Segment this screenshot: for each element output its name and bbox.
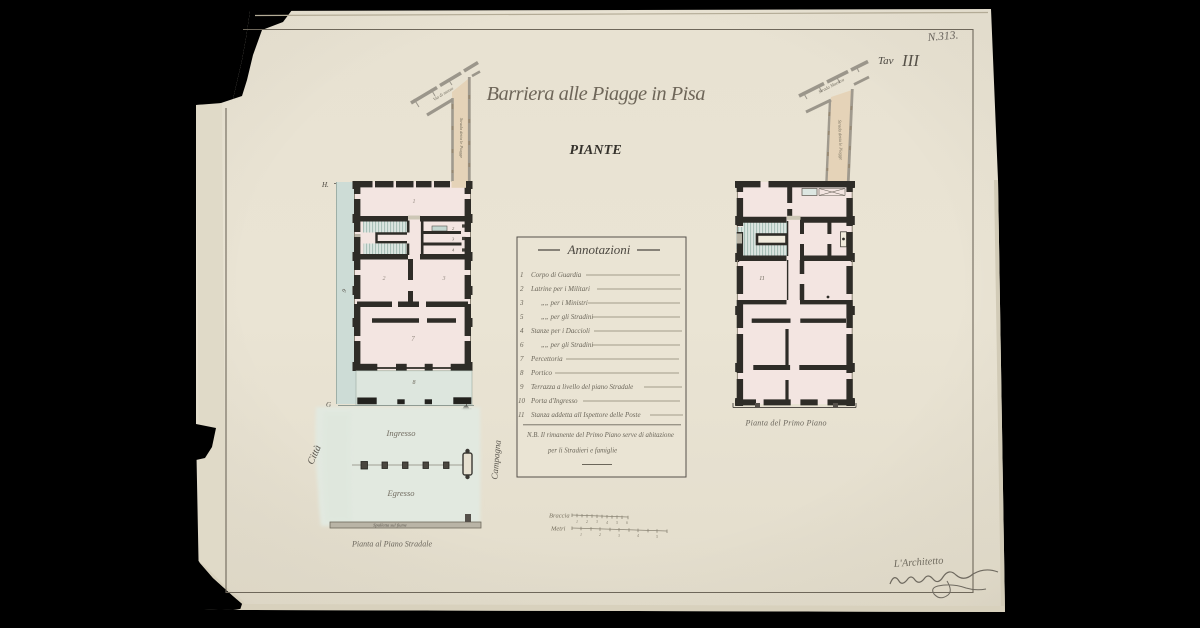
svg-text:11: 11: [759, 276, 765, 282]
svg-text:1: 1: [576, 519, 578, 524]
svg-text:6: 6: [626, 520, 628, 525]
svg-text:8: 8: [520, 369, 524, 377]
svg-text:6: 6: [520, 341, 524, 349]
svg-text:Corpo di Guardia: Corpo di Guardia: [531, 271, 582, 279]
svg-text:10: 10: [518, 397, 526, 405]
svg-text:Spalletta sul fiume: Spalletta sul fiume: [373, 523, 407, 528]
svg-text:Barriera alle Piagge in Pisa: Barriera alle Piagge in Pisa: [487, 83, 706, 105]
svg-text:8: 8: [413, 380, 416, 386]
svg-text:5: 5: [616, 520, 618, 525]
svg-text:7: 7: [520, 355, 524, 363]
svg-text:Tav: Tav: [878, 55, 894, 67]
svg-text:2: 2: [586, 519, 588, 524]
svg-text:Strada detta le Piagge: Strada detta le Piagge: [459, 118, 464, 158]
svg-text:Percettoria: Percettoria: [530, 355, 563, 363]
svg-text:Ingresso: Ingresso: [386, 428, 416, 438]
svg-text:4: 4: [520, 327, 524, 335]
svg-text:1: 1: [520, 271, 524, 279]
svg-text:7: 7: [411, 335, 415, 343]
svg-text:2: 2: [520, 285, 524, 293]
svg-text:9: 9: [520, 383, 524, 391]
svg-text:Annotazioni: Annotazioni: [567, 242, 631, 257]
svg-text:5: 5: [656, 534, 658, 539]
svg-text:3: 3: [519, 299, 524, 307]
svg-text:2: 2: [599, 532, 601, 537]
svg-text:H.: H.: [321, 181, 329, 189]
svg-text:11: 11: [518, 411, 524, 419]
svg-text:N.B. Il rimanente del Primo P: N.B. Il rimanente del Primo Piano serve …: [526, 432, 674, 439]
svg-text:Pianta del Primo Piano: Pianta del Primo Piano: [745, 419, 827, 428]
svg-text:Pianta al Piano Stradale: Pianta al Piano Stradale: [351, 540, 432, 549]
svg-text:3: 3: [596, 519, 598, 524]
svg-text:Stanza addetta all Ispettore d: Stanza addetta all Ispettore delle Poste: [531, 411, 641, 419]
svg-text:Portico: Portico: [530, 369, 552, 377]
svg-text:per li Stradieri e famiglie: per li Stradieri e famiglie: [547, 448, 617, 455]
svg-text:PIANTE: PIANTE: [570, 143, 623, 158]
svg-text:Terrazza a livello del piano S: Terrazza a livello del piano Stradale: [531, 383, 633, 391]
svg-text:„„ per gli Stradini: „„ per gli Stradini: [541, 313, 593, 321]
svg-text:Metri: Metri: [550, 526, 566, 533]
svg-text:3: 3: [618, 533, 620, 538]
svg-text:4: 4: [637, 533, 639, 538]
svg-text:Braccia: Braccia: [549, 513, 570, 520]
svg-text:3: 3: [442, 276, 446, 282]
svg-text:1: 1: [580, 532, 582, 537]
svg-text:Latrine per i Militari: Latrine per i Militari: [530, 285, 590, 293]
svg-text:„„ per i Ministri: „„ per i Ministri: [541, 299, 588, 307]
svg-text:„„ per gli Stradini: „„ per gli Stradini: [541, 341, 593, 349]
svg-text:1: 1: [413, 199, 416, 205]
svg-text:Stanze per i Daccioli: Stanze per i Daccioli: [531, 327, 590, 335]
svg-text:Porta d'Ingresso: Porta d'Ingresso: [530, 397, 578, 405]
svg-text:III: III: [901, 51, 920, 70]
svg-text:4: 4: [606, 520, 608, 525]
svg-text:5: 5: [520, 313, 524, 321]
svg-text:Egresso: Egresso: [386, 488, 414, 498]
svg-text:2: 2: [383, 276, 386, 282]
